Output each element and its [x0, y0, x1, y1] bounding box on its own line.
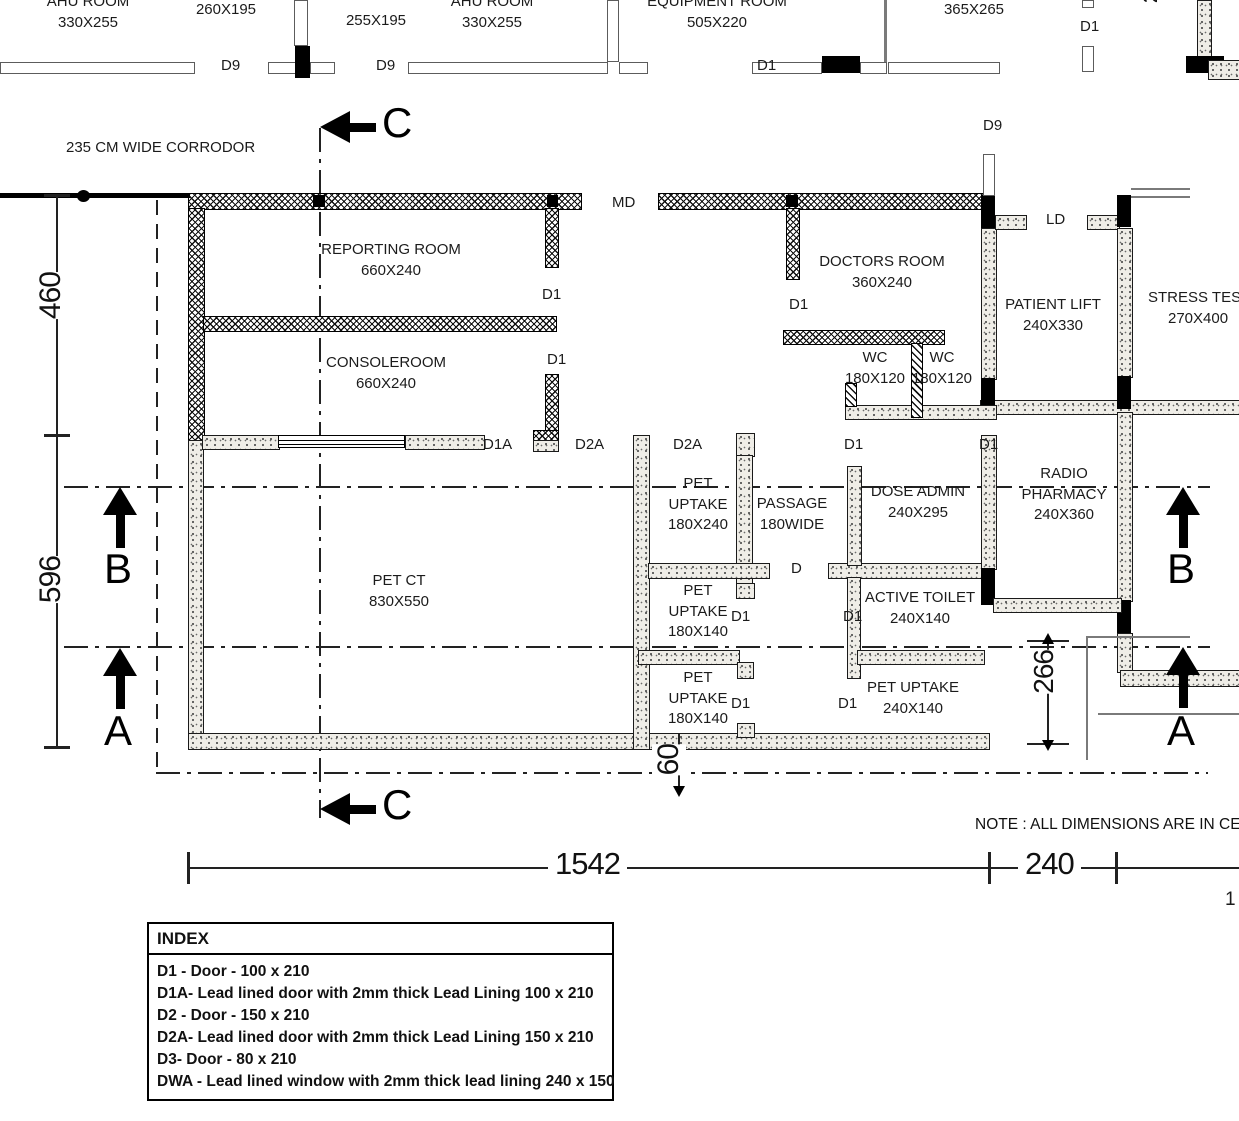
room-label-radio-pharmacy: RADIO PHARMACY 240X360	[1006, 464, 1122, 526]
section-c-arrow-stem	[348, 805, 376, 814]
room-name: PET	[660, 668, 736, 689]
door-jamb	[736, 583, 755, 599]
door-label-d1: D1	[757, 57, 776, 74]
room-label-dose-admin: DOSE ADMIN 240X295	[860, 482, 976, 523]
room-name: DOSE ADMIN	[860, 482, 976, 503]
door-label-d9: D9	[376, 57, 395, 74]
index-entries: D1 - Door - 100 x 210 D1A- Lead lined do…	[149, 955, 612, 1099]
room-label-ahu-right: AHU ROOM 330X255	[432, 0, 552, 33]
room-name: PHARMACY	[1006, 485, 1122, 506]
dim-tick	[44, 746, 70, 749]
partition-wall	[607, 0, 619, 62]
door-leaf-d1	[822, 56, 860, 73]
room-name: WC	[908, 348, 976, 369]
lead-wall-doctors	[786, 208, 800, 280]
concrete-wall	[1197, 0, 1212, 60]
dim-line-bottom	[188, 867, 1239, 869]
room-dims: 505X220	[638, 13, 796, 34]
room-name: UPTAKE	[660, 602, 736, 623]
room-label-365: 365X265	[936, 0, 1012, 21]
dim-tick	[44, 194, 70, 197]
dim-tick	[988, 852, 991, 884]
concrete-wall-divider	[857, 650, 985, 665]
door-label-d1: D1	[843, 608, 862, 625]
room-name: PET	[660, 474, 736, 495]
door-label-d1: D1	[838, 695, 857, 712]
room-dims: 180X140	[660, 709, 736, 730]
section-b-arrow-stem	[116, 513, 125, 548]
room-dims: 240X140	[853, 699, 973, 720]
wall-column	[1117, 195, 1131, 227]
room-dims: 240X330	[994, 316, 1112, 337]
room-label-pet-uptake-mid: PET UPTAKE 180X140	[660, 581, 736, 643]
lead-window-dwa	[278, 435, 405, 448]
partition-wall	[294, 0, 308, 46]
concrete-wall-lift-east	[1117, 228, 1133, 378]
door-jamb	[545, 208, 559, 268]
corridor-wall	[619, 62, 648, 74]
room-dims: 180WIDE	[746, 515, 838, 536]
concrete-wall-petuptake-west	[633, 435, 650, 750]
dim-tick	[1115, 852, 1118, 884]
room-label-wc-right: WC 180X120	[908, 348, 976, 389]
room-name: PET UPTAKE	[853, 678, 973, 699]
room-label-pet-uptake-top: PET UPTAKE 180X240	[660, 474, 736, 536]
partition-wall	[884, 0, 887, 62]
door-label-d1a: D1A	[483, 436, 512, 453]
room-name: PET	[660, 581, 736, 602]
door-jamb	[736, 433, 755, 457]
door-jamb	[1082, 46, 1094, 72]
door-label-d: D	[791, 560, 802, 577]
dim-arrow-icon	[1042, 633, 1054, 644]
door-label-d1: D1	[731, 608, 750, 625]
dim-value-240: 240	[1018, 846, 1081, 882]
floor-plan: 460 596 1542 240 1 2 266 60 B A B A C C …	[0, 0, 1239, 1121]
room-label-console: CONSOLEROOM 660X240	[313, 353, 459, 394]
door-label-d1: D1	[789, 296, 808, 313]
dimensions-note: NOTE : ALL DIMENSIONS ARE IN CENTIMETERS	[975, 816, 1239, 834]
room-name: UPTAKE	[660, 689, 736, 710]
door-jamb	[545, 374, 559, 434]
concrete-wall	[405, 435, 485, 450]
room-label-ahu-left: AHU ROOM 330X255	[18, 0, 158, 33]
door-jamb	[737, 723, 755, 738]
dim-value-partial: 1	[1225, 889, 1236, 911]
door-label-d1: D1	[979, 436, 998, 453]
concrete-wall	[1208, 60, 1239, 80]
room-label-doctors: DOCTORS ROOM 360X240	[808, 252, 956, 293]
concrete-wall-bottom	[188, 733, 990, 750]
room-label-active-toilet: ACTIVE TOILET 240X140	[854, 588, 986, 629]
room-name: DOCTORS ROOM	[808, 252, 956, 273]
room-name: AHU ROOM	[432, 0, 552, 13]
section-c-letter: C	[382, 784, 412, 826]
section-a-arrow-icon	[1166, 647, 1200, 675]
room-name: PASSAGE	[746, 494, 838, 515]
room-dims: 240X360	[1006, 505, 1122, 526]
room-dims: 830X550	[338, 592, 460, 613]
concrete-wall-rp-east	[1117, 633, 1133, 673]
dim-tick	[187, 852, 190, 884]
door-label-d9: D9	[221, 57, 240, 74]
room-dims: 180X140	[660, 622, 736, 643]
room-dims: 180X120	[908, 369, 976, 390]
door-label-d1: D1	[542, 286, 561, 303]
concrete-wall-divider	[648, 563, 770, 579]
dim-arrow-icon	[1042, 740, 1054, 751]
section-c-arrow-stem	[348, 123, 376, 132]
ramp-edge	[1086, 636, 1088, 760]
door-label-d2a: D2A	[575, 436, 604, 453]
room-dims: 360X240	[808, 273, 956, 294]
room-dims: 180X240	[660, 515, 736, 536]
room-name: EQUIPMENT ROOM	[638, 0, 796, 13]
ramp-edge	[1086, 636, 1190, 638]
corridor-wall	[408, 62, 608, 74]
index-entry: D2 - Door - 150 x 210	[157, 1005, 604, 1027]
corridor-edge	[1131, 196, 1190, 198]
section-b-arrow-stem	[1179, 513, 1188, 548]
corridor-wall	[268, 62, 296, 74]
room-dims: 660X240	[318, 261, 464, 282]
wall-edge-line	[0, 193, 190, 198]
lead-wall-top-west	[188, 193, 582, 210]
room-name: AHU ROOM	[18, 0, 158, 13]
room-label-patient-lift: PATIENT LIFT 240X330	[994, 295, 1112, 336]
room-label-reporting: REPORTING ROOM 660X240	[318, 240, 464, 281]
door-label-d1: D1	[731, 695, 750, 712]
door-label-ld: LD	[1046, 211, 1065, 228]
corridor-wall	[888, 62, 1000, 74]
corridor-edge	[1131, 188, 1190, 190]
room-label-260: 260X195	[188, 0, 264, 21]
room-label-wc-left: WC 180X120	[843, 348, 907, 389]
dim-value-460: 460	[34, 272, 68, 319]
index-title: INDEX	[149, 924, 612, 955]
concrete-wall-east	[981, 435, 997, 570]
index-entry: D1A- Lead lined door with 2mm thick Lead…	[157, 983, 604, 1005]
room-name: STRESS TEST	[1148, 288, 1239, 309]
section-a-arrow-stem	[1179, 673, 1188, 708]
room-label-stress-test: STRESS TEST 270X400	[1148, 288, 1239, 329]
section-c-arrow-icon	[320, 111, 350, 143]
index-entry: D3- Door - 80 x 210	[157, 1049, 604, 1071]
index-entry: DWA - Lead lined window with 2mm thick l…	[157, 1071, 604, 1093]
room-dims: 270X400	[1148, 309, 1239, 330]
dim-value-266: 266	[1028, 650, 1060, 694]
room-dims: 260X195	[188, 0, 264, 21]
survey-point	[77, 190, 90, 202]
room-name: WC	[843, 348, 907, 369]
door-jamb	[533, 440, 559, 452]
wall-column	[1117, 376, 1131, 409]
door-label-d1: D1	[547, 351, 566, 368]
room-dims: 255X195	[338, 11, 414, 32]
room-dims: 240X140	[854, 609, 986, 630]
concrete-wall-divider	[638, 650, 740, 665]
section-a-letter: A	[104, 710, 132, 752]
section-line-c	[319, 128, 321, 818]
concrete-wall	[202, 435, 280, 450]
room-dims: 180X120	[843, 369, 907, 390]
section-a-arrow-icon	[103, 648, 137, 676]
room-dims: 330X255	[18, 13, 158, 34]
corridor-label: 235 CM WIDE CORRODOR	[66, 139, 255, 156]
door-label-d2a: D2A	[673, 436, 702, 453]
room-name: PATIENT LIFT	[994, 295, 1112, 316]
section-b-arrow-icon	[1166, 487, 1200, 515]
dim-arrow-icon	[673, 786, 685, 797]
room-dims: 365X265	[936, 0, 1012, 21]
room-label-passage: PASSAGE 180WIDE	[746, 494, 838, 535]
door-leaf-d9-lift	[983, 154, 995, 196]
index-table: INDEX D1 - Door - 100 x 210 D1A- Lead li…	[147, 922, 614, 1101]
concrete-wall-ld-stub	[1087, 215, 1120, 230]
index-entry: D2A- Lead lined door with 2mm thick Lead…	[157, 1027, 604, 1049]
section-b-letter: B	[1167, 548, 1195, 590]
room-name: PET CT	[338, 571, 460, 592]
concrete-wall-ld-stub	[995, 215, 1027, 230]
room-label-pet-uptake-bottom: PET UPTAKE 180X140	[660, 668, 736, 730]
door-label-md: MD	[612, 194, 635, 211]
section-a-letter: A	[1167, 710, 1195, 752]
door-jamb	[737, 662, 754, 679]
room-dims: 330X255	[432, 13, 552, 34]
corridor-wall	[860, 62, 887, 74]
room-name: ACTIVE TOILET	[854, 588, 986, 609]
door-label-d1: D1	[844, 436, 863, 453]
room-dims: 660X240	[313, 374, 459, 395]
section-c-arrow-icon	[320, 793, 350, 825]
door-jamb	[1082, 0, 1094, 8]
lead-wall-divider	[203, 316, 557, 332]
room-dims: 240X295	[860, 503, 976, 524]
door-leaf-d9	[295, 46, 310, 78]
wall-joint	[786, 195, 798, 207]
room-label-255: 255X195	[338, 11, 414, 32]
room-label-equipment: EQUIPMENT ROOM 505X220	[638, 0, 796, 33]
concrete-wall-rp-top	[980, 400, 1239, 415]
dim-value-partial-top: 2	[1140, 0, 1163, 3]
index-entry: D1 - Door - 100 x 210	[157, 961, 604, 983]
concrete-wall-west	[188, 440, 204, 737]
room-label-pet-ct: PET CT 830X550	[338, 571, 460, 612]
wall-joint	[547, 195, 558, 207]
concrete-wall-rp-bottom	[993, 598, 1122, 613]
section-c-letter: C	[382, 102, 412, 144]
door-label-d9: D9	[983, 117, 1002, 134]
room-name: RADIO	[1006, 464, 1122, 485]
wall-joint	[313, 195, 325, 207]
room-name: UPTAKE	[660, 495, 736, 516]
lead-wall-top-east	[658, 193, 987, 210]
section-a-arrow-stem	[116, 674, 125, 709]
dim-value-60: 60	[652, 744, 686, 775]
corridor-wall	[310, 62, 335, 74]
dim-value-1542: 1542	[548, 846, 627, 882]
wall-column	[981, 195, 995, 228]
section-b-arrow-icon	[103, 487, 137, 515]
room-name: REPORTING ROOM	[318, 240, 464, 261]
door-label-d1: D1	[1080, 18, 1099, 35]
room-label-pet-uptake-right: PET UPTAKE 240X140	[853, 678, 973, 719]
dim-value-596: 596	[34, 556, 68, 603]
corridor-wall	[0, 62, 195, 74]
room-name: CONSOLEROOM	[313, 353, 459, 374]
dim-tick	[44, 434, 70, 437]
section-b-letter: B	[104, 548, 132, 590]
